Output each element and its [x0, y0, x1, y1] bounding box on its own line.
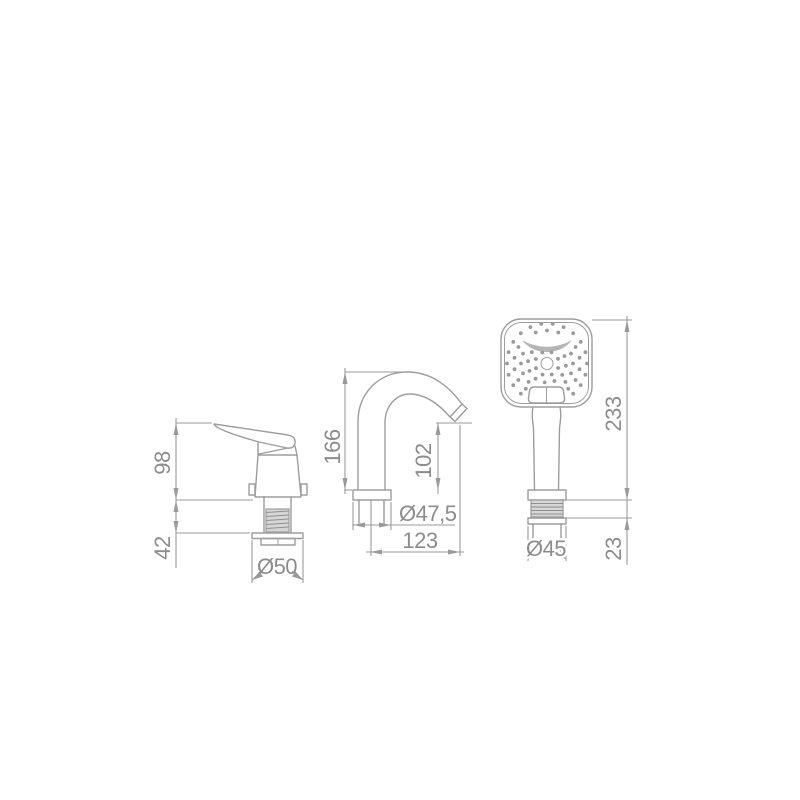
mixer-dimensions: 98 42 Ø50	[150, 418, 303, 583]
spray-dot	[540, 351, 544, 355]
shower-spray-dots	[505, 322, 589, 396]
dim-label-42: 42	[150, 536, 175, 560]
spout-flange	[353, 490, 391, 500]
spray-dot	[519, 331, 523, 335]
spray-dot	[507, 373, 511, 377]
spray-dot	[569, 372, 573, 376]
spray-dot	[521, 372, 525, 376]
arrowhead-right	[379, 523, 391, 528]
spray-dot	[511, 340, 515, 344]
spray-dot	[534, 366, 538, 370]
spray-dot	[584, 350, 588, 354]
spray-dot	[550, 351, 554, 355]
spray-dot	[563, 354, 567, 358]
shower-collar-top	[528, 490, 566, 500]
spray-dot	[534, 377, 538, 381]
arrowhead-up	[174, 500, 179, 512]
arrowhead-up	[436, 423, 441, 435]
arrowhead-down	[174, 521, 179, 533]
arrowhead-down	[174, 488, 179, 500]
spout-dimensions: 166 102 Ø47,5 123	[320, 368, 472, 556]
spray-dot	[539, 322, 543, 326]
dim-label-o45: Ø45	[526, 536, 566, 561]
mixer-side-tab-left	[249, 484, 255, 495]
spray-dot	[560, 373, 564, 377]
spray-dot	[571, 331, 575, 335]
shower-handle	[532, 407, 561, 490]
mixer-flange	[252, 533, 303, 539]
arrowhead-up	[625, 518, 630, 530]
arrowhead-down	[625, 488, 630, 500]
arrowhead-up	[625, 320, 630, 332]
spray-dot	[527, 380, 531, 384]
spray-dot	[513, 356, 517, 360]
spray-dot	[517, 345, 521, 349]
spray-dot	[571, 392, 575, 396]
arrowhead-left	[370, 550, 382, 555]
spray-dot	[556, 366, 560, 370]
spray-dot	[529, 325, 533, 329]
spray-dot	[574, 345, 578, 349]
shower-arc-band	[522, 340, 572, 352]
spray-dot	[569, 352, 573, 356]
spout-aerator	[450, 404, 467, 422]
mixer-lever	[214, 424, 295, 448]
handshower-view	[501, 319, 592, 556]
arrowhead-up	[174, 423, 179, 435]
dim-label-233: 233	[601, 396, 626, 431]
dim-label-98: 98	[150, 451, 175, 475]
spray-dot	[507, 350, 511, 354]
shower-center-nozzle	[541, 358, 553, 370]
spray-dot	[579, 383, 583, 387]
arrowhead-right	[448, 550, 460, 555]
mixer-side-tab-right	[301, 484, 307, 495]
spray-dot	[556, 331, 560, 335]
dim-label-166: 166	[320, 429, 345, 464]
arrowhead-down	[436, 478, 441, 490]
technical-drawing: 98 42 Ø50 166 102	[0, 0, 800, 800]
spray-dot	[521, 352, 525, 356]
spray-dot	[517, 378, 521, 382]
spray-dot	[545, 329, 549, 333]
spray-dot	[513, 367, 517, 371]
spray-dot	[564, 364, 568, 368]
arrowhead-up	[343, 372, 348, 384]
spray-dot	[584, 373, 588, 377]
spray-dot	[511, 383, 515, 387]
spray-dot	[505, 362, 509, 366]
spray-dot	[530, 350, 534, 354]
dim-label-102: 102	[411, 443, 436, 478]
dim-label-o475: Ø47,5	[399, 501, 457, 526]
shower-collar-bottom	[528, 518, 566, 524]
spray-dot	[541, 373, 545, 377]
spout-outer-curve	[358, 372, 462, 490]
spray-dot	[566, 387, 570, 391]
spray-dot	[564, 380, 568, 384]
dim-label-123: 123	[402, 528, 437, 553]
spray-dot	[524, 387, 528, 391]
shower-ribbed-block	[531, 500, 563, 518]
mixer-body	[255, 455, 301, 497]
spray-dot	[543, 381, 547, 385]
spray-dot	[562, 325, 566, 329]
spray-dot	[534, 331, 538, 335]
spray-dot	[556, 357, 560, 361]
spray-dot	[534, 357, 538, 361]
technical-drawing-page: 98 42 Ø50 166 102	[0, 0, 800, 800]
spray-dot	[526, 359, 530, 363]
spray-dot	[519, 392, 523, 396]
spray-dot	[528, 369, 532, 373]
spray-dot	[579, 340, 583, 344]
dim-label-o50: Ø50	[257, 554, 297, 579]
mixer-view	[214, 424, 307, 545]
spray-dot	[553, 379, 557, 383]
spray-dot	[578, 367, 582, 371]
spray-dot	[574, 378, 578, 382]
dim-label-23: 23	[601, 537, 626, 561]
spray-dot	[550, 373, 554, 377]
spray-dot	[585, 362, 589, 366]
spray-dot	[578, 356, 582, 360]
spray-dot	[571, 362, 575, 366]
arrowhead-down	[343, 478, 348, 490]
spray-dot	[551, 322, 555, 326]
spray-dot	[519, 362, 523, 366]
